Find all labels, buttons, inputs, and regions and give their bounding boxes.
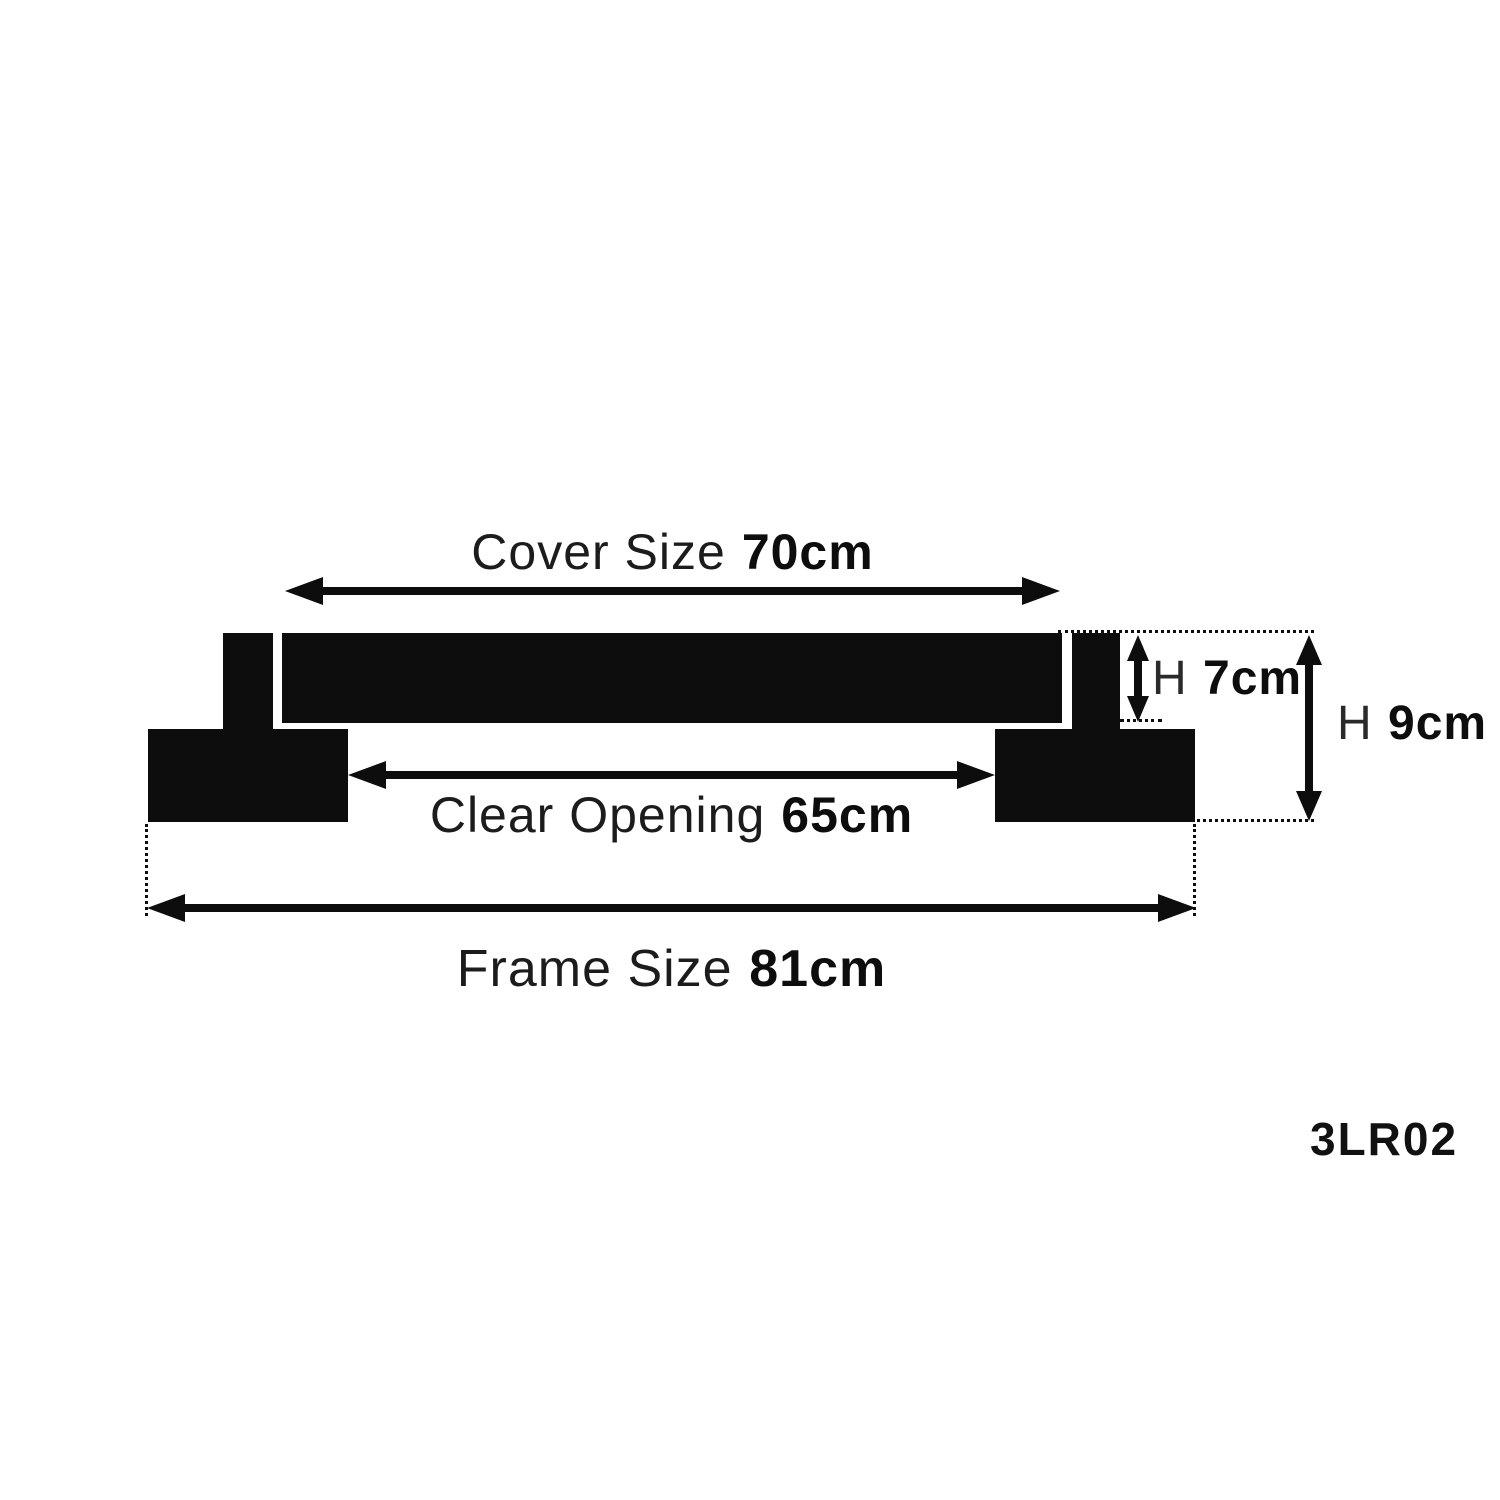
arrowhead-left-icon xyxy=(147,894,185,922)
arrowhead-right-icon xyxy=(1022,577,1060,605)
arrow-shaft xyxy=(1134,661,1142,696)
frame-right-flange xyxy=(995,729,1195,822)
extension-line-flange-bottom xyxy=(1120,819,1314,822)
dimension-diagram: Cover Size70cm Clear Opening65cm Frame S… xyxy=(0,0,1500,1500)
cover-size-value: 70cm xyxy=(742,524,874,580)
arrowhead-right-icon xyxy=(957,761,995,789)
frame-right-wall xyxy=(1072,633,1120,733)
frame-left-wall xyxy=(223,633,273,733)
product-code: 3LR02 xyxy=(1310,1112,1458,1166)
cover-height-value: 7cm xyxy=(1203,652,1302,705)
clear-opening-label-text: Clear Opening xyxy=(430,787,765,843)
cover-height-label: H7cm xyxy=(1152,655,1302,703)
clear-opening-value: 65cm xyxy=(781,787,913,843)
cover-height-label-text: H xyxy=(1152,652,1188,705)
clear-opening-label: Clear Opening65cm xyxy=(348,790,995,840)
arrowhead-up-icon xyxy=(1127,635,1149,661)
extension-line-cover-top xyxy=(1058,630,1314,633)
arrow-shaft xyxy=(323,587,1022,595)
cover-size-label: Cover Size70cm xyxy=(285,527,1060,577)
arrowhead-left-icon xyxy=(285,577,323,605)
clear-opening-arrow xyxy=(348,761,995,789)
overall-height-label: H9cm xyxy=(1337,700,1487,748)
overall-height-value: 9cm xyxy=(1388,697,1487,750)
cover-plate xyxy=(282,633,1062,723)
arrowhead-right-icon xyxy=(1158,894,1196,922)
frame-size-arrow xyxy=(147,894,1196,922)
arrowhead-left-icon xyxy=(348,761,386,789)
arrow-shaft xyxy=(185,904,1158,912)
cover-height-arrow xyxy=(1125,635,1151,722)
overall-height-label-text: H xyxy=(1337,697,1373,750)
arrowhead-down-icon xyxy=(1296,791,1322,821)
arrow-shaft xyxy=(1305,665,1313,791)
arrow-shaft xyxy=(386,771,957,779)
cover-size-label-text: Cover Size xyxy=(471,524,726,580)
cover-size-arrow xyxy=(285,577,1060,605)
frame-size-value: 81cm xyxy=(749,940,886,998)
frame-left-flange xyxy=(148,729,348,822)
frame-size-label: Frame Size81cm xyxy=(147,943,1196,995)
frame-size-label-text: Frame Size xyxy=(457,940,733,998)
arrowhead-down-icon xyxy=(1127,696,1149,722)
